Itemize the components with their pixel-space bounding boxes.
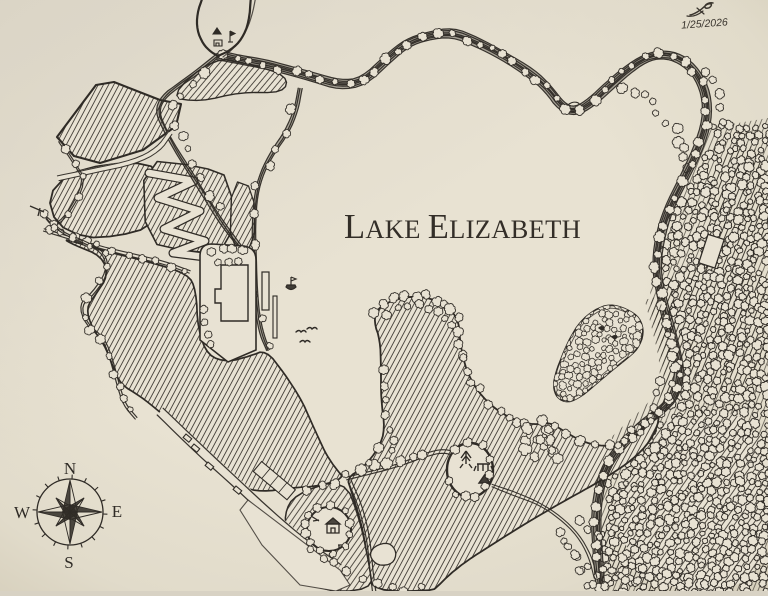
svg-text:W: W [14,503,31,522]
svg-text:N: N [64,459,76,478]
svg-text:LAKEELIZABETH: LAKEELIZABETH [344,208,581,246]
svg-text:E: E [112,502,122,521]
svg-text:S: S [64,553,73,572]
